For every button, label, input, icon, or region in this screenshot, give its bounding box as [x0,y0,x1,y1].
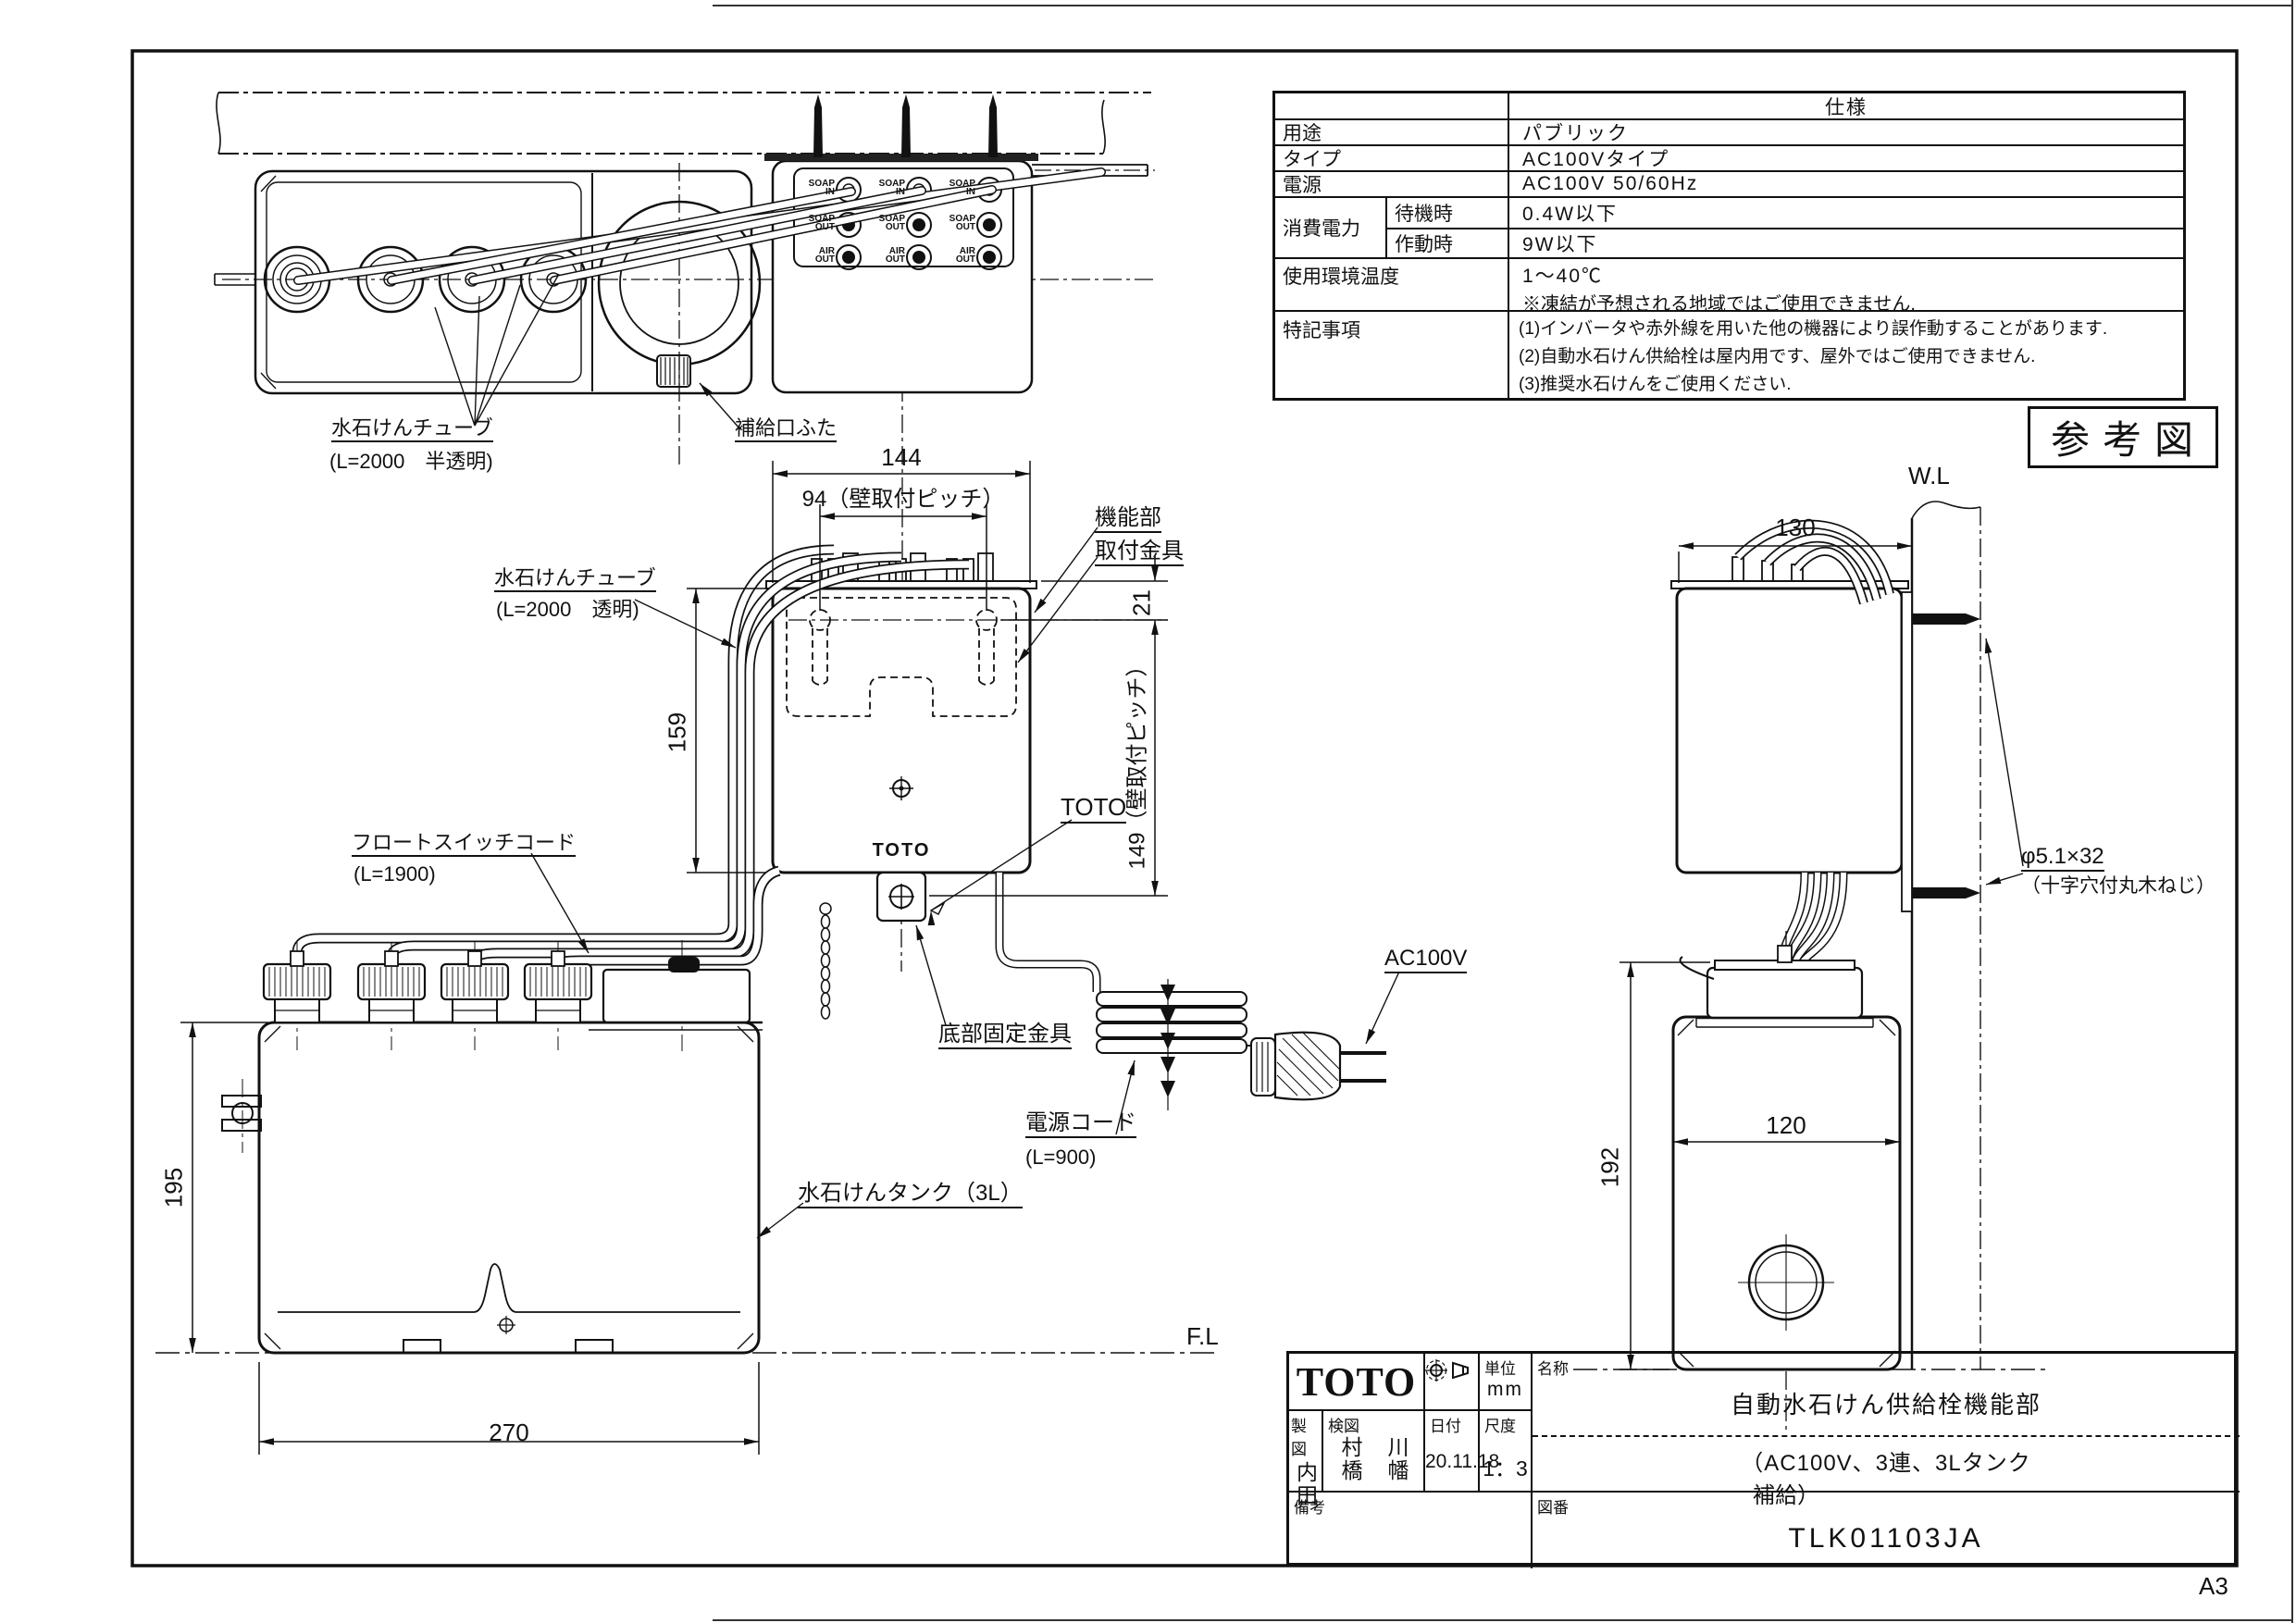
spec-row-temp: 使用環境温度 1～40℃ ※凍結が予想される地域ではご使用できません. [1275,257,2183,310]
plug-voltage-label: AC100V [1384,946,1467,972]
name-cell: 名称 自動水石けん供給栓機能部 （AC100V、3連、3Lタンク 補給） [1533,1354,2240,1493]
top-tube-sub: (L=2000 半透明) [329,450,493,473]
spec-row-type: タイプ AC100Vタイプ [1275,144,2183,170]
port-label-soap-in: SOAP IN [872,180,905,196]
spec-row-usage: 用途 パブリック [1275,118,2183,144]
checker-cell: 検図 村橋 川幡 [1323,1411,1425,1493]
drawing-sheet: 水石けんチューブ (L=2000 半透明) 補給口ふた SOAP IN SOAP… [0,0,2296,1623]
dim-94: 94（壁取付ピッチ） [755,487,1051,513]
spec-header-row: 仕様 [1275,93,2183,118]
drawing-number-cell: 図番 TLK01103JA [1533,1493,2240,1568]
page-size-label: A3 [2199,1573,2228,1601]
power-cord-sub: (L=900) [1025,1146,1096,1169]
toto-logo-on-unit: TOTO [855,840,948,861]
dim-144: 144 [846,444,957,472]
port-label-soap-out: SOAP OUT [872,215,905,231]
port-label-air-out: AIR OUT [942,247,975,264]
unit-cell: 単位 mm [1480,1354,1533,1411]
port-label-soap-in: SOAP IN [942,180,975,196]
reference-stamp: 参考図 [2028,406,2218,468]
power-cord-label: 電源コード [1025,1110,1136,1136]
toto-leader-label: TOTO [1061,794,1126,822]
scale-cell: 尺度 1：3 [1480,1411,1533,1493]
spec-row-power: 電源 AC100V 50/60Hz [1275,170,2183,196]
float-cord-label: フロートスイッチコード [352,831,576,854]
date-cell: 日付 20.11.18 [1425,1411,1480,1493]
dim-195: 195 [160,1049,189,1327]
dim-192: 192 [1596,1029,1625,1307]
dim-149: 149（壁取付ピッチ） [1119,624,1151,901]
title-block: TOTO 単位 mm 名称 自動水石けん供給栓機能部 （AC100V、3連、3L… [1286,1351,2237,1566]
port-label-soap-out: SOAP OUT [801,215,835,231]
spec-table: 仕様 用途 パブリック タイプ AC100Vタイプ 電源 AC100V 50/6… [1272,91,2186,401]
float-cord-sub: (L=1900) [354,862,436,886]
wall-line-label: W.L [1908,463,1950,490]
dim-130: 130 [1740,514,1851,542]
port-label-air-out: AIR OUT [872,247,905,264]
spec-header: 仕様 [1509,93,2183,118]
side-view-drawing [1573,502,2045,1430]
refill-cap-label: 補給口ふた [735,416,837,440]
toto-logo: TOTO [1289,1354,1425,1411]
spec-row-notes: 特記事項 (1)インバータや赤外線を用いた他の機器により誤作動することがあります… [1275,310,2183,398]
dim-270: 270 [453,1419,565,1447]
front-tube-sub: (L=2000 透明) [496,598,639,621]
dim-159: 159 [664,594,692,872]
screw-spec-sub: （十字穴付丸木ねじ） [2021,875,2215,898]
projection-symbol-icon [1425,1354,1480,1411]
floor-line-label: F.L [1186,1323,1219,1351]
screw-spec-label: φ5.1×32 [2021,844,2104,870]
front-tube-label: 水石けんチューブ [494,566,656,589]
port-label-soap-out: SOAP OUT [942,215,975,231]
port-label-soap-in: SOAP IN [801,180,835,196]
remarks-cell: 備考 [1289,1493,1533,1568]
drafter-cell: 製図 内田 [1289,1411,1323,1493]
top-tube-label: 水石けんチューブ [331,416,493,440]
tank-label: 水石けんタンク（3L） [798,1181,1023,1207]
bottom-bracket-label: 底部固定金具 [938,1022,1072,1047]
spec-row-consumption: 消費電力 待機時 作動時 0.4W以下 9W以下 [1275,196,2183,257]
dim-120: 120 [1731,1112,1842,1140]
front-view-drawing [155,461,1399,1455]
port-label-air-out: AIR OUT [801,247,835,264]
